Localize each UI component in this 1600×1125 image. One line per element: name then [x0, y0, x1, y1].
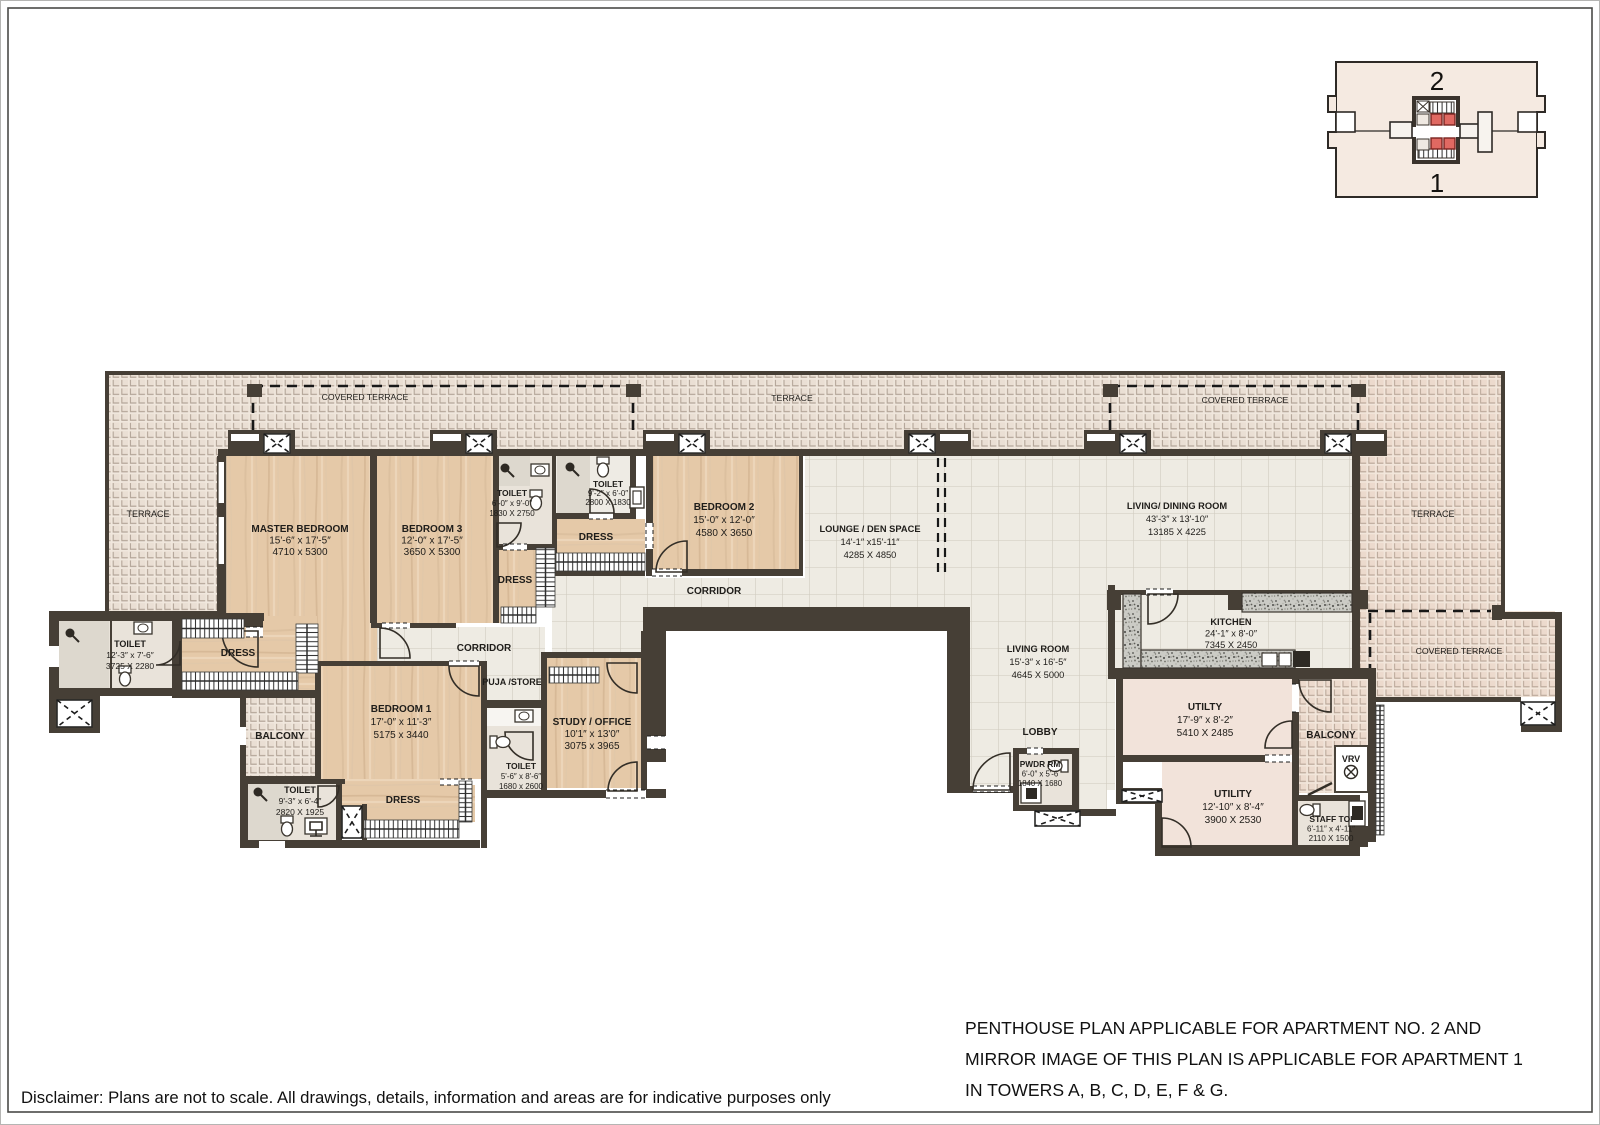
svg-text:4285 X 4850: 4285 X 4850 [844, 550, 897, 560]
svg-text:PUJA /STORE: PUJA /STORE [482, 677, 542, 687]
svg-text:MASTER BEDROOM: MASTER BEDROOM [251, 524, 348, 535]
svg-text:9'-2″ x 6'-0″: 9'-2″ x 6'-0″ [588, 489, 628, 498]
svg-text:UTILTY: UTILTY [1188, 702, 1223, 713]
svg-text:UTILITY: UTILITY [1214, 789, 1252, 800]
svg-text:1680 x 2600: 1680 x 2600 [499, 782, 544, 791]
svg-text:2110 X 1500: 2110 X 1500 [1309, 834, 1354, 843]
svg-text:CORRIDOR: CORRIDOR [457, 643, 512, 654]
svg-text:9'-3″ x 6'-4″: 9'-3″ x 6'-4″ [279, 796, 322, 806]
svg-text:43'-3″ x 13'-10″: 43'-3″ x 13'-10″ [1146, 514, 1209, 524]
svg-text:TERRACE: TERRACE [126, 509, 169, 519]
svg-text:TOILET: TOILET [506, 761, 537, 771]
svg-text:COVERED TERRACE: COVERED TERRACE [1416, 646, 1503, 656]
svg-text:10'1″ x 13'0″: 10'1″ x 13'0″ [565, 729, 620, 740]
svg-text:4645 X 5000: 4645 X 5000 [1012, 670, 1065, 680]
svg-text:BEDROOM 2: BEDROOM 2 [694, 502, 755, 513]
svg-text:TOILET: TOILET [284, 785, 316, 795]
svg-text:PENTHOUSE PLAN APPLICABLE FOR: PENTHOUSE PLAN APPLICABLE FOR APARTMENT … [965, 1018, 1481, 1038]
svg-text:COVERED TERRACE: COVERED TERRACE [1202, 395, 1289, 405]
svg-text:24'-1″ x 8'-0″: 24'-1″ x 8'-0″ [1205, 629, 1258, 639]
svg-text:2820 X 1925: 2820 X 1925 [276, 807, 324, 817]
svg-text:TOILET: TOILET [593, 479, 624, 489]
svg-text:5410 X 2485: 5410 X 2485 [1177, 728, 1234, 739]
svg-text:DRESS: DRESS [386, 795, 421, 806]
svg-text:BEDROOM 3: BEDROOM 3 [402, 524, 463, 535]
svg-text:5'-6″ x 8'-6″: 5'-6″ x 8'-6″ [501, 772, 541, 781]
svg-text:COVERED TERRACE: COVERED TERRACE [322, 392, 409, 402]
svg-text:1: 1 [1430, 168, 1444, 198]
svg-text:13185 X 4225: 13185 X 4225 [1148, 527, 1206, 537]
svg-text:14'-1″ x15'-11″: 14'-1″ x15'-11″ [840, 537, 900, 547]
svg-text:6'-0″ x 9'-0″: 6'-0″ x 9'-0″ [492, 499, 532, 508]
svg-text:TOILET: TOILET [497, 488, 528, 498]
svg-text:BALCONY: BALCONY [255, 731, 305, 742]
svg-text:12'-10″ x 8'-4″: 12'-10″ x 8'-4″ [1202, 802, 1264, 813]
svg-text:15'-6″ x 17'-5″: 15'-6″ x 17'-5″ [269, 536, 331, 547]
svg-text:DRESS: DRESS [579, 532, 614, 543]
svg-text:4580 X 3650: 4580 X 3650 [696, 528, 753, 539]
svg-text:BEDROOM 1: BEDROOM 1 [371, 704, 432, 715]
svg-text:TOILET: TOILET [114, 639, 146, 649]
svg-text:BALCONY: BALCONY [1306, 730, 1356, 741]
svg-text:PWDR RM: PWDR RM [1020, 759, 1061, 769]
svg-text:5175 x 3440: 5175 x 3440 [373, 730, 428, 741]
svg-text:3725 X 2280: 3725 X 2280 [106, 661, 154, 671]
svg-text:6'-11″ x 4'-11″: 6'-11″ x 4'-11″ [1307, 825, 1355, 834]
svg-text:12'-3″ x 7'-6″: 12'-3″ x 7'-6″ [106, 650, 154, 660]
svg-text:LIVING/ DINING ROOM: LIVING/ DINING ROOM [1127, 501, 1227, 511]
svg-text:15'-3″ x 16'-5″: 15'-3″ x 16'-5″ [1009, 657, 1067, 667]
svg-text:IN TOWERS A, B, C, D, E, F & G: IN TOWERS A, B, C, D, E, F & G. [965, 1080, 1228, 1100]
svg-text:CORRIDOR: CORRIDOR [687, 586, 742, 597]
svg-text:1830 X 2750: 1830 X 2750 [489, 509, 535, 518]
svg-text:VRV: VRV [1342, 754, 1360, 764]
svg-text:DRESS: DRESS [498, 575, 533, 586]
svg-text:LIVING ROOM: LIVING ROOM [1007, 644, 1070, 654]
svg-text:1840 X 1680: 1840 X 1680 [1018, 779, 1063, 788]
svg-text:15'-0″ x 12'-0″: 15'-0″ x 12'-0″ [693, 515, 755, 526]
svg-text:7345 X 2450: 7345 X 2450 [1205, 640, 1258, 650]
svg-text:MIRROR IMAGE OF THIS PLAN IS A: MIRROR IMAGE OF THIS PLAN IS APPLICABLE … [965, 1049, 1523, 1069]
svg-text:TERRACE: TERRACE [771, 393, 813, 403]
svg-text:LOBBY: LOBBY [1023, 727, 1058, 738]
svg-text:3900 X 2530: 3900 X 2530 [1205, 815, 1262, 826]
svg-text:2800 X 1830: 2800 X 1830 [585, 498, 631, 507]
svg-text:3650 X 5300: 3650 X 5300 [404, 547, 461, 558]
svg-text:4710 x 5300: 4710 x 5300 [272, 547, 327, 558]
svg-text:STAFF TOI: STAFF TOI [1309, 814, 1352, 824]
svg-text:6'-0″ x 5'-6: 6'-0″ x 5'-6 [1022, 770, 1059, 779]
svg-text:Disclaimer: Plans are not to s: Disclaimer: Plans are not to scale. All … [21, 1088, 831, 1107]
svg-text:STUDY / OFFICE: STUDY / OFFICE [553, 717, 632, 728]
svg-text:LOUNGE / DEN SPACE: LOUNGE / DEN SPACE [819, 524, 920, 534]
svg-text:17'-9″ x 8'-2″: 17'-9″ x 8'-2″ [1177, 715, 1233, 726]
svg-text:3075 x 3965: 3075 x 3965 [564, 741, 619, 752]
svg-text:2: 2 [1430, 66, 1444, 96]
svg-text:DRESS: DRESS [221, 648, 256, 659]
svg-text:12'-0″ x 17'-5″: 12'-0″ x 17'-5″ [401, 536, 463, 547]
svg-text:TERRACE: TERRACE [1411, 509, 1454, 519]
svg-text:KITCHEN: KITCHEN [1210, 617, 1252, 627]
svg-text:17'-0″ x 11'-3″: 17'-0″ x 11'-3″ [371, 717, 432, 728]
